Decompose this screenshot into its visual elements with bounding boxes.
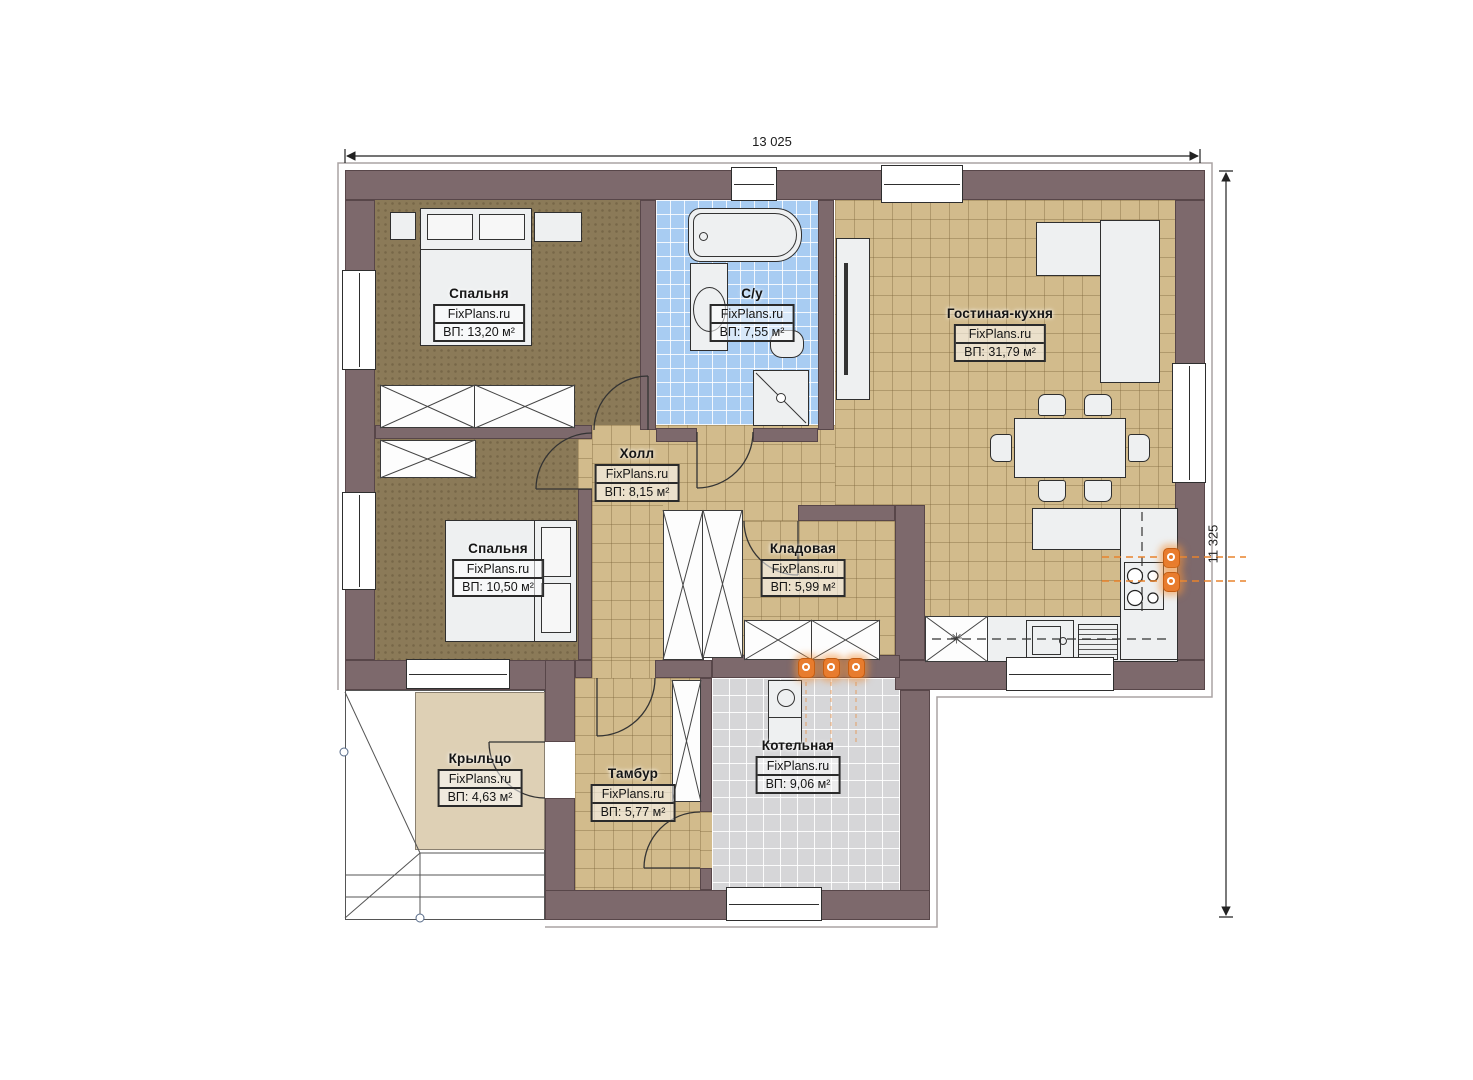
- room-name: Спальня: [452, 541, 544, 556]
- storage-shelf: [744, 620, 813, 660]
- window-boiler: [726, 887, 822, 921]
- wall-bathroom-living: [818, 200, 834, 430]
- watermark: FixPlans.ru: [597, 466, 678, 484]
- room-area: ВП: 13,20 м²: [435, 324, 523, 340]
- exterior-wall-left: [345, 200, 375, 660]
- room-name: Спальня: [433, 286, 525, 301]
- watermark: FixPlans.ru: [712, 306, 793, 324]
- floor-plan: ✳: [0, 0, 1473, 1080]
- watermark: FixPlans.ru: [956, 326, 1044, 344]
- dimension-width-label: 13 025: [752, 134, 792, 149]
- room-name: Кладовая: [761, 541, 846, 556]
- boiler: [768, 680, 802, 744]
- room-area: ВП: 7,55 м²: [712, 324, 793, 340]
- chair: [1128, 434, 1150, 462]
- wall-bathroom-hall-b: [753, 428, 818, 442]
- wall-storage-kitchen: [895, 505, 925, 660]
- radiator-marker: [823, 658, 840, 678]
- room-label-storage: Кладовая FixPlans.ru ВП: 5,99 м²: [761, 541, 846, 597]
- hall-corridor-floor: [592, 505, 663, 660]
- window-bedroom2-left: [342, 492, 376, 590]
- window-living-right: [1172, 363, 1206, 483]
- wall-bedroom1-bathroom: [640, 200, 656, 430]
- door-gap-floor: [700, 812, 712, 868]
- room-label-hall: Холл FixPlans.ru ВП: 8,15 м²: [595, 446, 680, 502]
- window-kitchen: [1006, 657, 1114, 691]
- room-name: Крыльцо: [438, 751, 523, 766]
- room-area: ВП: 10,50 м²: [454, 579, 542, 595]
- watermark: FixPlans.ru: [763, 561, 844, 579]
- watermark: FixPlans.ru: [593, 786, 674, 804]
- wall-corridor-vestibule-a: [575, 660, 592, 678]
- chair: [1038, 480, 1066, 502]
- sofa-corner: [1100, 220, 1160, 383]
- tv-icon: [844, 263, 848, 375]
- wall-bedroom2-hall: [578, 489, 592, 660]
- room-label-bedroom1: Спальня FixPlans.ru ВП: 13,20 м²: [433, 286, 525, 342]
- wardrobe: [474, 385, 575, 428]
- radiator-marker: [798, 658, 815, 678]
- room-name: Котельная: [756, 738, 841, 753]
- room-label-bedroom2: Спальня FixPlans.ru ВП: 10,50 м²: [452, 541, 544, 597]
- window-bedroom1: [342, 270, 376, 370]
- nightstand: [534, 212, 582, 242]
- watermark: FixPlans.ru: [435, 306, 523, 324]
- wall-storage-top: [798, 505, 895, 521]
- shower-cabin: [753, 370, 809, 426]
- hall-wardrobe: [702, 510, 743, 658]
- watermark: FixPlans.ru: [440, 771, 521, 789]
- nightstand: [390, 212, 416, 240]
- hall-wardrobe: [663, 510, 704, 660]
- watermark: FixPlans.ru: [758, 758, 839, 776]
- window-bathroom: [731, 167, 777, 201]
- room-area: ВП: 9,06 м²: [758, 776, 839, 792]
- chair: [990, 434, 1012, 462]
- wall-corridor-vestibule-b: [655, 660, 712, 678]
- room-area: ВП: 5,77 м²: [593, 804, 674, 820]
- window-bedroom2-porch: [406, 659, 510, 689]
- wall-vestibule-boiler-lower: [700, 868, 712, 890]
- chair: [1038, 394, 1066, 416]
- wall-vestibule-boiler-upper: [700, 678, 712, 812]
- dishwasher: [1078, 624, 1118, 660]
- radiator-marker: [848, 658, 865, 678]
- room-name: Гостиная-кухня: [947, 306, 1053, 321]
- radiator-marker: [1163, 548, 1180, 568]
- room-label-vestibule: Тамбур FixPlans.ru ВП: 5,77 м²: [591, 766, 676, 822]
- wall-bathroom-hall-a: [656, 428, 697, 442]
- room-area: ВП: 8,15 м²: [597, 484, 678, 500]
- extension-wall-right: [900, 690, 930, 920]
- room-area: ВП: 4,63 м²: [440, 789, 521, 805]
- door-gap-floor: [592, 660, 655, 678]
- vestibule-closet: [672, 680, 701, 802]
- room-label-porch: Крыльцо FixPlans.ru ВП: 4,63 м²: [438, 751, 523, 807]
- room-area: ВП: 31,79 м²: [956, 344, 1044, 360]
- room-name: Холл: [595, 446, 680, 461]
- window-living-top: [881, 165, 963, 203]
- room-label-boiler: Котельная FixPlans.ru ВП: 9,06 м²: [756, 738, 841, 794]
- storage-shelf: [811, 620, 880, 660]
- tv-stand: [836, 238, 870, 400]
- chair: [1084, 394, 1112, 416]
- wardrobe: [380, 440, 476, 478]
- front-door-opening: [545, 742, 575, 798]
- fridge: ✳: [925, 616, 988, 662]
- stove: [1124, 562, 1164, 610]
- dimension-height-label: 11 325: [1206, 525, 1221, 564]
- wardrobe: [380, 385, 476, 428]
- room-name: С/у: [710, 286, 795, 301]
- extension-wall-left-upper: [545, 660, 575, 742]
- room-area: ВП: 5,99 м²: [763, 579, 844, 595]
- room-name: Тамбур: [591, 766, 676, 781]
- room-label-living-kitchen: Гостиная-кухня FixPlans.ru ВП: 31,79 м²: [947, 306, 1053, 362]
- chair: [1084, 480, 1112, 502]
- radiator-marker: [1163, 572, 1180, 592]
- room-label-bathroom: С/у FixPlans.ru ВП: 7,55 м²: [710, 286, 795, 342]
- kitchen-sink: [1026, 620, 1074, 660]
- door-gap-floor: [578, 439, 592, 489]
- watermark: FixPlans.ru: [454, 561, 542, 579]
- bathtub: [688, 208, 802, 262]
- fridge-snowflake-icon: ✳: [950, 629, 963, 647]
- dining-table: [1014, 418, 1126, 478]
